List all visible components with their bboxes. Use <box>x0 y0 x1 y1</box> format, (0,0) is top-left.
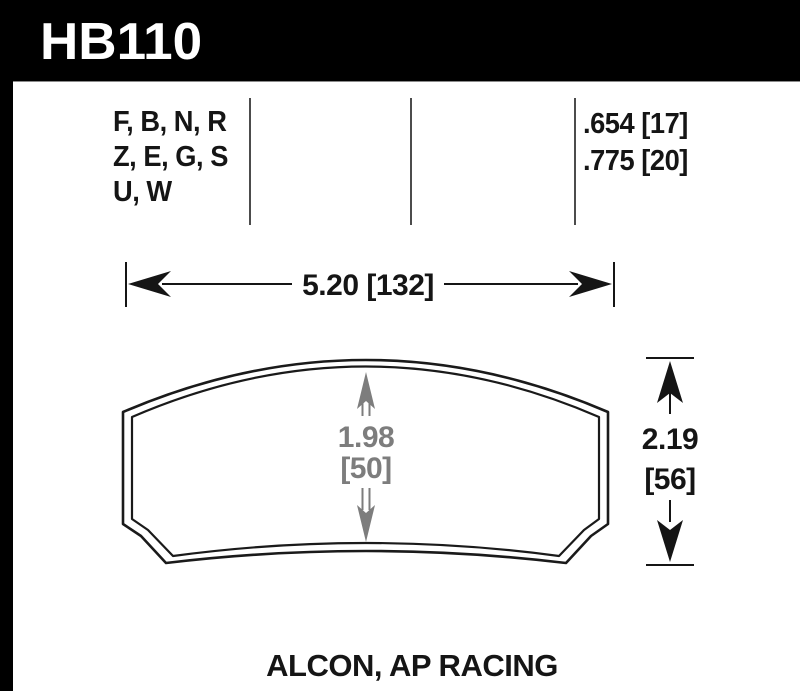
height-dim-inches: 2.19 <box>642 423 698 456</box>
arrowhead-down-icon <box>657 520 683 562</box>
height-dim-mm: [56] <box>644 463 695 496</box>
arrowhead-up-icon <box>357 372 375 409</box>
arrowhead-down-icon <box>357 505 375 542</box>
height-dimension <box>646 358 694 565</box>
pad-technical-drawing: 5.20 [132] 1.98 [50] 2.19 [56] <box>0 0 800 691</box>
applications-label: ALCON, AP RACING <box>24 648 800 684</box>
center-dim-mm: [50] <box>340 452 391 485</box>
width-dim-label: 5.20 [132] <box>302 269 434 302</box>
center-dim-inches: 1.98 <box>338 421 394 454</box>
